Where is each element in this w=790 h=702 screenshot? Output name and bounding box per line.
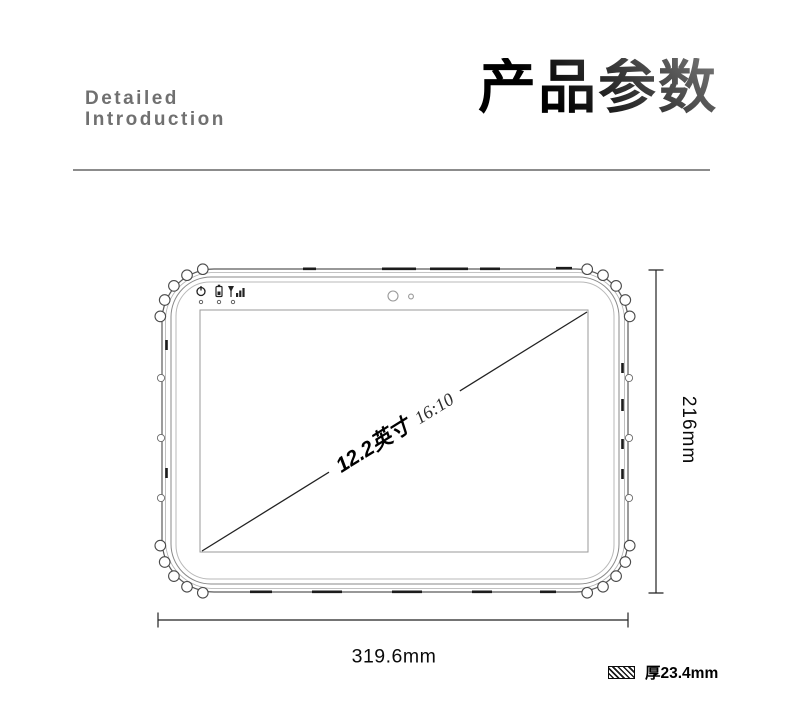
- product-parameters-page: Detailed Introduction 产品参数: [0, 0, 790, 702]
- hatch-swatch-icon: [608, 666, 635, 679]
- battery-icon: [216, 285, 222, 297]
- front-camera-icon: [388, 291, 398, 301]
- thickness-label: 厚23.4mm: [645, 661, 718, 683]
- signal-icon: [228, 286, 245, 297]
- light-sensor-icon: [409, 294, 414, 299]
- status-indicator-icons: [197, 285, 245, 304]
- height-dimension-line: [649, 270, 664, 593]
- thickness-annotation: 厚23.4mm: [608, 661, 718, 683]
- tablet-line-drawing: [0, 0, 790, 702]
- width-dimension-line: [158, 613, 628, 628]
- power-led-icon: [199, 300, 202, 303]
- width-dimension-label: 319.6mm: [352, 646, 437, 669]
- power-icon: [197, 286, 205, 296]
- signal-led-icon: [231, 300, 234, 303]
- battery-led-icon: [217, 300, 220, 303]
- height-dimension-label: 216mm: [677, 396, 699, 464]
